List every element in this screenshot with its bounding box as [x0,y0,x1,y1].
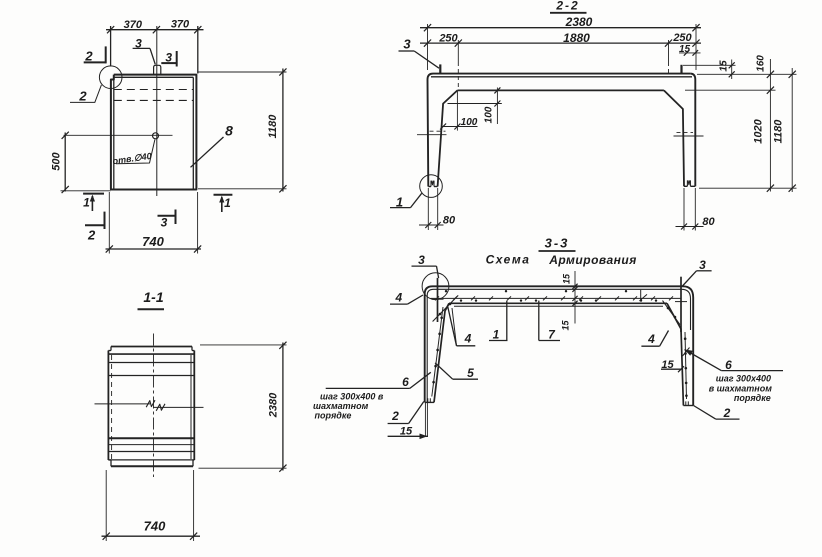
svg-text:Армирования: Армирования [548,253,637,267]
svg-text:100: 100 [484,106,495,123]
svg-text:3: 3 [418,253,425,267]
svg-text:6: 6 [402,375,409,389]
svg-text:1880: 1880 [563,31,590,45]
svg-text:3: 3 [403,37,411,52]
svg-text:2: 2 [78,89,87,104]
svg-text:250: 250 [438,32,458,44]
svg-text:2380: 2380 [565,15,593,29]
svg-text:1: 1 [224,196,231,210]
svg-text:5: 5 [467,366,474,380]
svg-text:370: 370 [124,19,143,31]
svg-text:80: 80 [702,216,715,228]
svg-text:740: 740 [144,519,166,534]
svg-text:4: 4 [647,332,655,346]
svg-text:2: 2 [84,49,93,64]
svg-text:1020: 1020 [753,118,765,143]
svg-text:6: 6 [725,358,732,372]
svg-text:2380: 2380 [267,392,279,418]
svg-text:шахматном: шахматном [313,401,369,411]
svg-text:1-1: 1-1 [143,289,163,305]
svg-text:2-2: 2-2 [555,0,579,13]
svg-text:160: 160 [756,55,767,72]
svg-text:шаг 300х400: шаг 300х400 [716,374,771,384]
svg-text:2: 2 [723,406,731,420]
svg-text:порядке: порядке [315,411,352,421]
svg-text:3-3: 3-3 [545,236,570,251]
svg-text:1: 1 [493,328,500,342]
svg-text:740: 740 [142,234,164,249]
svg-text:500: 500 [51,151,63,170]
svg-text:100: 100 [461,117,478,128]
svg-text:3: 3 [699,258,706,272]
svg-text:1180: 1180 [772,119,784,144]
svg-text:370: 370 [171,19,190,31]
svg-text:в шахматном: в шахматном [709,384,773,394]
svg-text:3: 3 [161,216,168,230]
svg-text:15: 15 [719,60,730,72]
svg-text:250: 250 [672,32,692,44]
svg-text:шаг 300х400 в: шаг 300х400 в [320,392,384,402]
svg-text:15: 15 [562,273,572,284]
svg-text:1: 1 [83,196,90,210]
svg-text:порядке: порядке [734,393,771,403]
svg-text:2: 2 [87,228,96,243]
svg-text:1180: 1180 [267,114,279,139]
svg-text:4: 4 [464,332,472,346]
svg-text:2: 2 [391,409,399,423]
svg-text:4: 4 [394,291,402,305]
svg-text:15: 15 [561,320,571,331]
svg-text:80: 80 [443,215,456,227]
svg-text:8: 8 [225,123,233,139]
svg-text:Схема: Схема [486,253,531,267]
